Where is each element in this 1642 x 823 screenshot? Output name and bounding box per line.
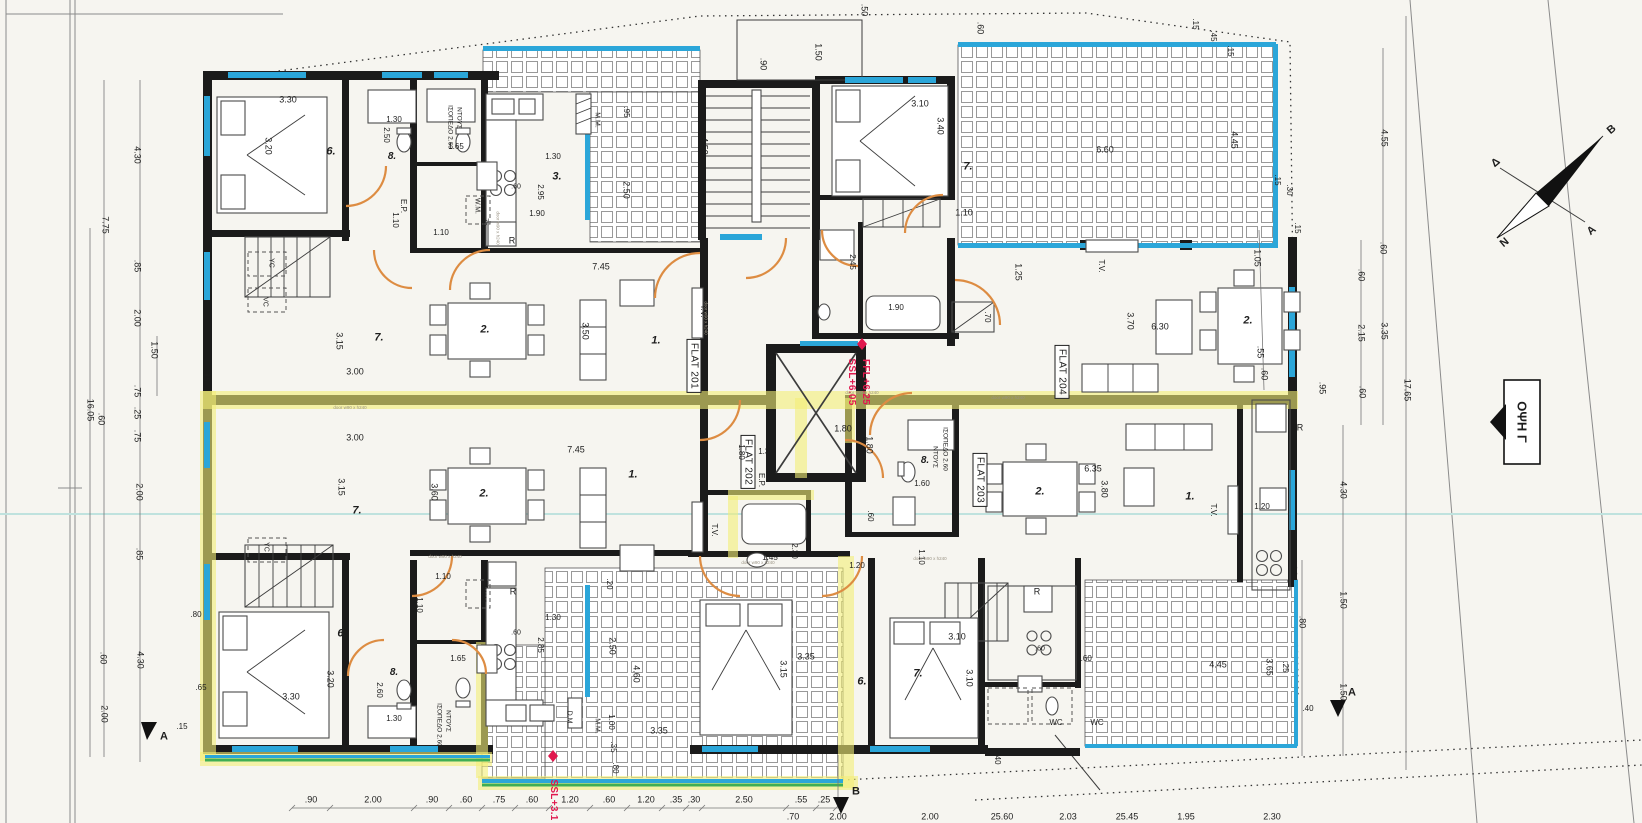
balcony-top-right	[958, 45, 1276, 245]
tv-unit	[1086, 240, 1138, 252]
stairwell	[706, 90, 810, 228]
sofa	[1124, 424, 1238, 534]
elevator-shaft	[776, 353, 856, 473]
dining-table	[1200, 270, 1300, 382]
dining-table	[986, 444, 1095, 534]
section-arrow-a-right	[1330, 700, 1346, 717]
bed	[700, 600, 792, 735]
section-arrow-a-left	[141, 722, 157, 740]
sofa	[580, 280, 654, 380]
tv-unit	[1228, 486, 1238, 534]
bed	[219, 612, 329, 738]
tv-unit	[692, 288, 703, 338]
entrance-canopy	[737, 20, 862, 80]
kitchen-counter	[988, 586, 1076, 692]
tv-unit	[692, 502, 703, 552]
section-arrow-b	[833, 797, 849, 814]
dining-table	[430, 283, 544, 377]
kitchen-counter	[486, 94, 591, 246]
balcony-top-left	[483, 50, 700, 92]
balcony-bottom-right	[1085, 580, 1297, 746]
floorplan-drawing	[0, 0, 1642, 823]
kitchen-counter	[1252, 400, 1290, 590]
compass-rose	[1497, 136, 1603, 238]
bed	[217, 97, 327, 213]
bed	[890, 618, 978, 738]
dining-table	[430, 448, 544, 542]
elevation-marker-box	[1490, 380, 1540, 464]
floorplan-canvas: FLAT 201FLAT 202FLAT 203FLAT 204FFL+6.25…	[0, 0, 1642, 823]
bed	[832, 86, 948, 196]
sofa	[1082, 240, 1192, 392]
stair-flight-right-top	[863, 199, 940, 227]
